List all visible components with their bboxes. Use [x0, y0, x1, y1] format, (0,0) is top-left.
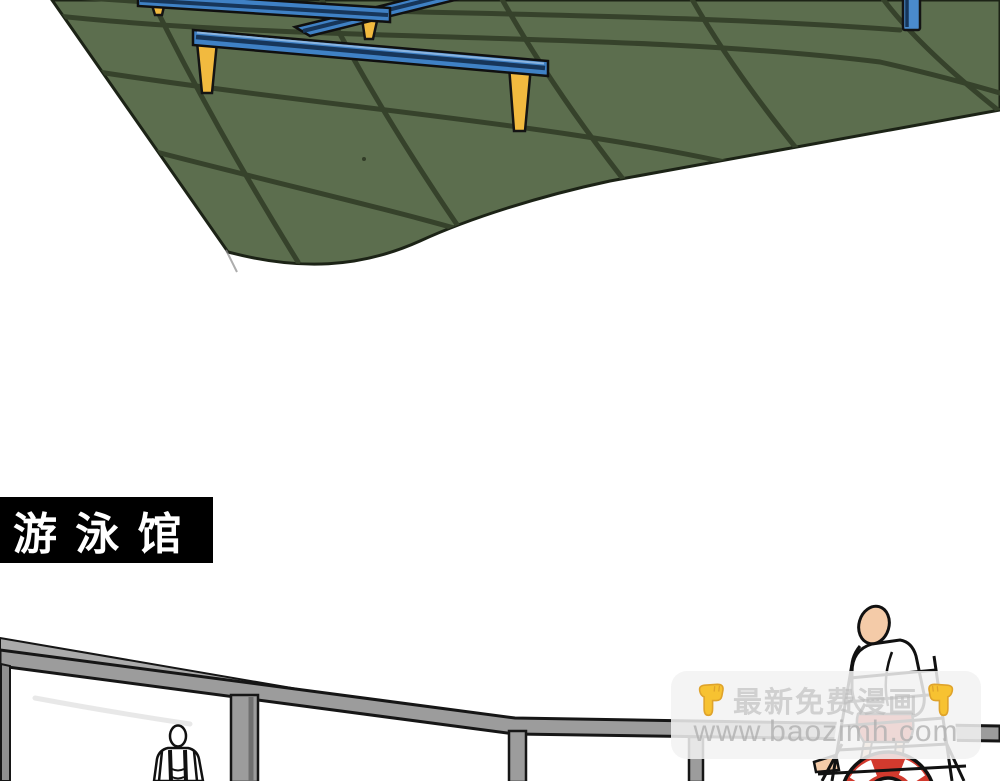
- scene-caption-text: 游 泳 馆: [13, 498, 184, 562]
- ground-speck: [362, 157, 366, 161]
- comic-artwork: [0, 0, 1000, 781]
- playground-pole: [903, 0, 920, 30]
- fence-post: [231, 695, 258, 781]
- fence-post: [509, 731, 526, 781]
- watermark-box: 最新免费漫画 www.baozimh.com: [671, 671, 981, 759]
- glass-reflection: [35, 698, 190, 724]
- scene-caption: 游 泳 馆: [0, 497, 213, 563]
- beam-leg: [197, 42, 217, 93]
- swimmer-head: [170, 726, 186, 747]
- swimmer-figure: [154, 726, 203, 781]
- comic-page: 游 泳 馆 最新免费漫画 www.baozimh.com: [0, 0, 1000, 781]
- watermark-line1: 最新免费漫画: [696, 681, 956, 719]
- pointing-down-icon: [696, 682, 726, 718]
- watermark-url: www.baozimh.com: [693, 715, 958, 749]
- fence-post: [1, 664, 10, 781]
- pointing-down-icon: [926, 682, 956, 718]
- playground-field: [40, 0, 1000, 272]
